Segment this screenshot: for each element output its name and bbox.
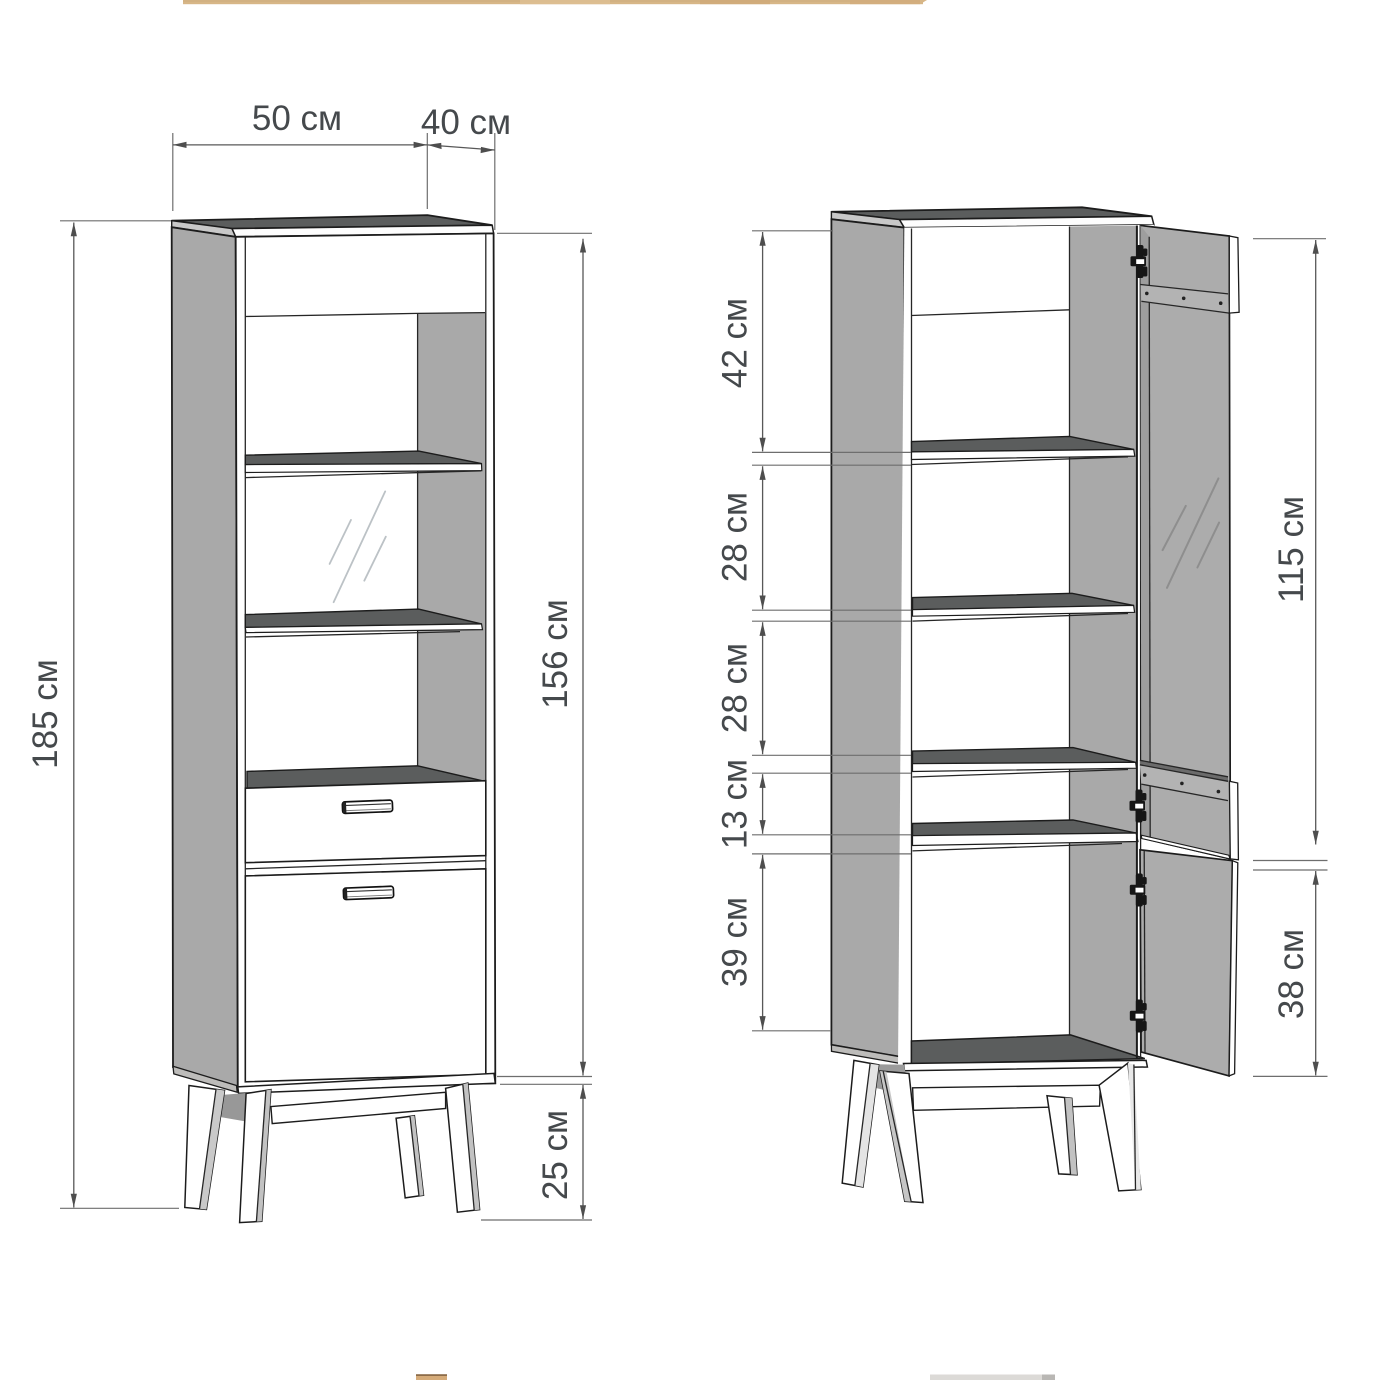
svg-text:185 см: 185 см: [26, 659, 65, 769]
svg-text:28 см: 28 см: [716, 643, 755, 733]
svg-text:40 см: 40 см: [421, 103, 511, 142]
svg-text:115 см: 115 см: [1272, 496, 1311, 603]
svg-text:156 см: 156 см: [536, 599, 575, 709]
svg-text:25 см: 25 см: [536, 1110, 575, 1200]
svg-text:13 см: 13 см: [716, 759, 755, 849]
svg-text:28 см: 28 см: [716, 492, 755, 582]
svg-text:50 см: 50 см: [252, 99, 342, 138]
svg-text:39 см: 39 см: [716, 897, 755, 987]
svg-text:38 см: 38 см: [1272, 929, 1311, 1019]
svg-text:42 см: 42 см: [716, 298, 755, 388]
